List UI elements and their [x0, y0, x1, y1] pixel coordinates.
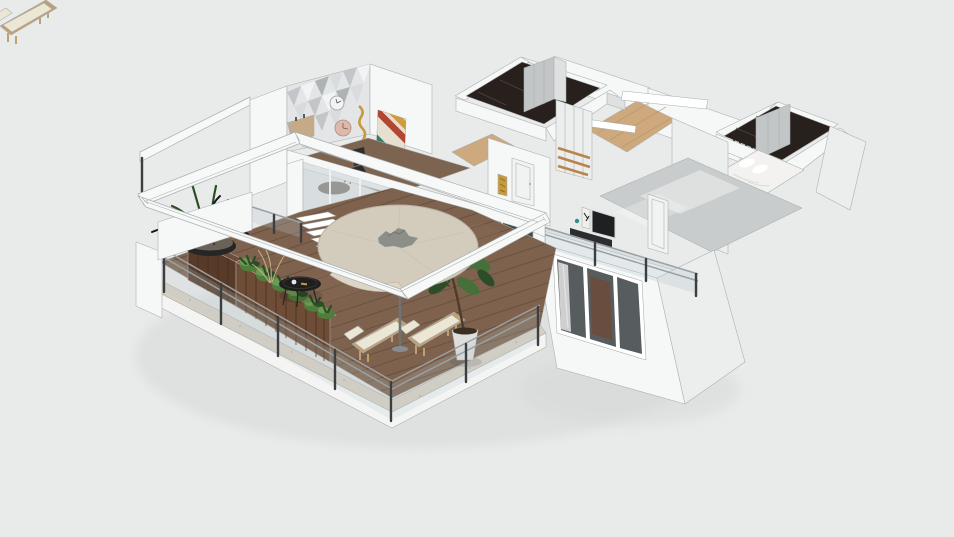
hallway-door[interactable]	[512, 158, 534, 206]
gold-mosaic-art[interactable]	[498, 174, 507, 196]
floorplan-3d-canvas[interactable]	[0, 0, 954, 537]
render-svg	[0, 0, 954, 537]
parasol-base	[392, 346, 408, 352]
tv-screen	[592, 210, 615, 238]
sun-lounger[interactable]	[0, 0, 57, 44]
bedroom1-door[interactable]	[648, 194, 668, 254]
wall-clock[interactable]	[330, 96, 344, 110]
eave-beam	[140, 97, 250, 162]
teal-vase	[575, 219, 579, 223]
window-reflection	[590, 276, 612, 340]
wall-clock-2[interactable]	[335, 120, 351, 136]
table-item	[292, 280, 297, 285]
shelving-unit[interactable]	[556, 100, 592, 180]
framed-art	[582, 207, 590, 229]
